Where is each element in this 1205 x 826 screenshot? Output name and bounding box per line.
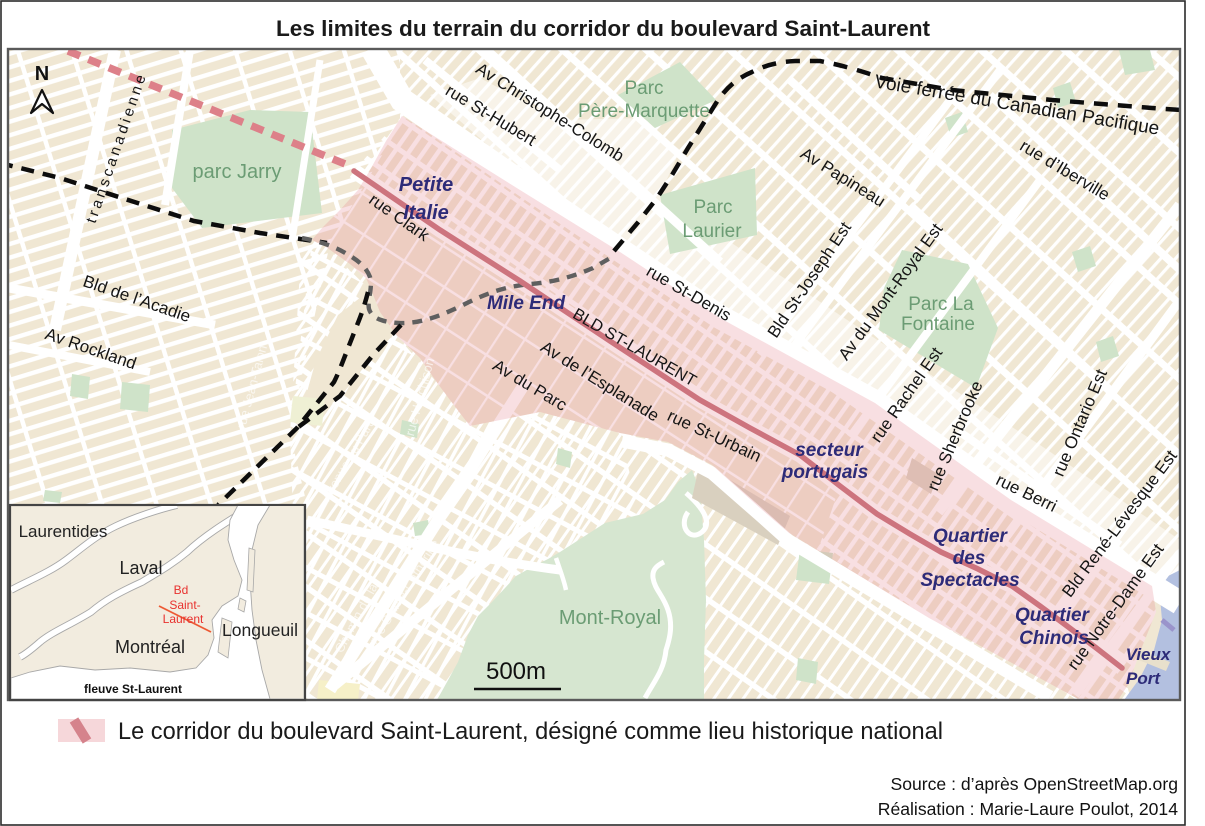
svg-text:Fontaine: Fontaine (901, 314, 975, 335)
svg-text:Laurentides: Laurentides (19, 522, 108, 541)
svg-text:N: N (35, 63, 49, 85)
svg-text:des: des (953, 548, 986, 569)
svg-text:Quartier: Quartier (1015, 605, 1091, 626)
svg-text:Italie: Italie (403, 202, 449, 224)
svg-text:Mile End: Mile End (487, 293, 566, 314)
svg-text:Spectacles: Spectacles (920, 570, 1019, 591)
svg-text:secteur: secteur (795, 440, 864, 461)
svg-text:Saint-: Saint- (169, 598, 200, 612)
svg-text:Laval: Laval (119, 558, 162, 578)
svg-text:Bd: Bd (174, 583, 189, 597)
svg-text:Chinois: Chinois (1019, 628, 1089, 649)
svg-text:Port: Port (1126, 669, 1161, 688)
svg-text:Les limites du terrain du corr: Les limites du terrain du corridor du bo… (276, 16, 931, 41)
svg-text:Source : d’après OpenStreetMap: Source : d’après OpenStreetMap.org (890, 774, 1178, 794)
svg-text:Laurent: Laurent (163, 612, 204, 626)
svg-text:Quartier: Quartier (933, 526, 1009, 547)
svg-text:Longueuil: Longueuil (222, 620, 298, 640)
svg-text:Parc: Parc (624, 78, 663, 99)
svg-text:Le corridor du boulevard Saint: Le corridor du boulevard Saint-Laurent, … (118, 719, 943, 745)
svg-text:fleuve St-Laurent: fleuve St-Laurent (84, 682, 182, 696)
svg-text:Mont-Royal: Mont-Royal (559, 607, 661, 629)
svg-text:portugais: portugais (781, 462, 869, 483)
svg-text:parc Jarry: parc Jarry (193, 161, 282, 183)
svg-text:Montréal: Montréal (115, 637, 185, 657)
svg-text:Vieux: Vieux (1126, 645, 1172, 664)
svg-text:Parc La: Parc La (908, 294, 974, 315)
svg-text:Laurier: Laurier (682, 221, 742, 242)
svg-text:500m: 500m (486, 658, 546, 685)
svg-text:Parc: Parc (693, 197, 732, 218)
svg-text:Réalisation : Marie-Laure Poul: Réalisation : Marie-Laure Poulot, 2014 (878, 799, 1178, 819)
svg-text:Petite: Petite (399, 174, 453, 196)
svg-text:Père-Marquette: Père-Marquette (578, 101, 710, 122)
